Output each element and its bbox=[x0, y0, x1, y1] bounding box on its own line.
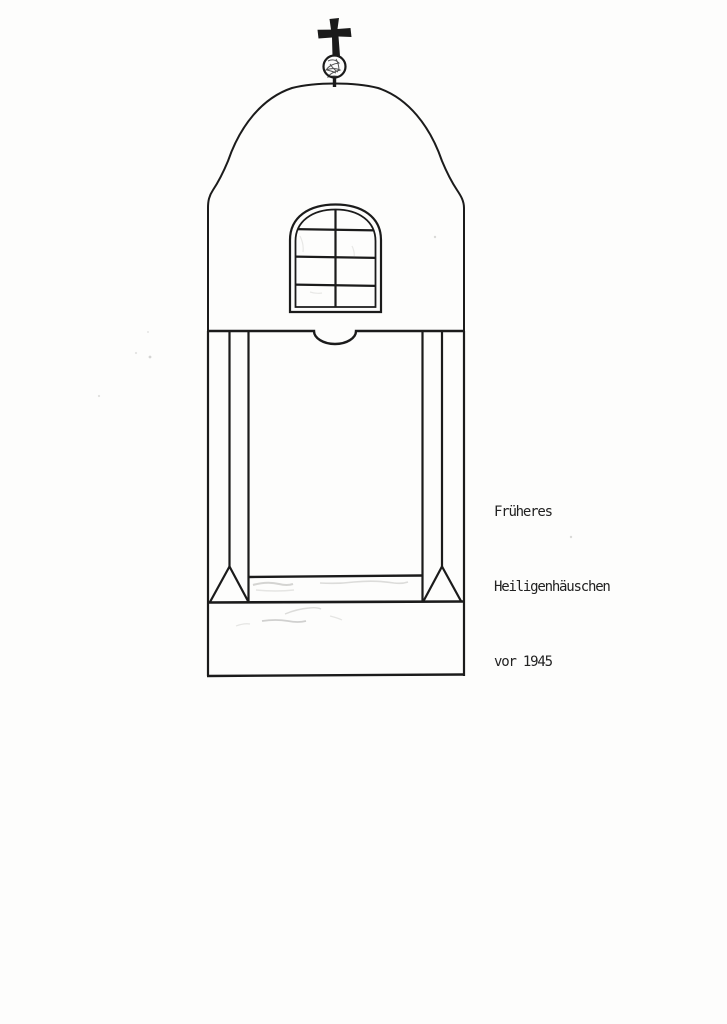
caption-block: Früheres Heiligenhäuschen vor 1945 bbox=[494, 450, 610, 725]
orb-finial bbox=[324, 56, 346, 88]
niche-sill-line bbox=[249, 576, 423, 578]
niche-posts bbox=[230, 332, 443, 602]
sill-and-base-lines bbox=[207, 576, 464, 677]
cross-finial-icon bbox=[318, 18, 352, 57]
window-bar-middle bbox=[290, 257, 381, 259]
beam-line-with-notch bbox=[208, 331, 464, 344]
base-top-line bbox=[208, 602, 464, 603]
window-bar-bottom bbox=[290, 285, 381, 287]
arched-window bbox=[290, 205, 381, 313]
caption-line-1: Früheres bbox=[494, 500, 610, 525]
window-bar-top bbox=[290, 229, 381, 231]
scanned-page: Früheres Heiligenhäuschen vor 1945 bbox=[0, 0, 727, 1024]
caption-line-2: Heiligenhäuschen bbox=[494, 575, 610, 600]
shrine-line-drawing bbox=[0, 0, 727, 1024]
caption-line-3: vor 1945 bbox=[494, 650, 610, 675]
base-bottom-line bbox=[207, 675, 464, 677]
